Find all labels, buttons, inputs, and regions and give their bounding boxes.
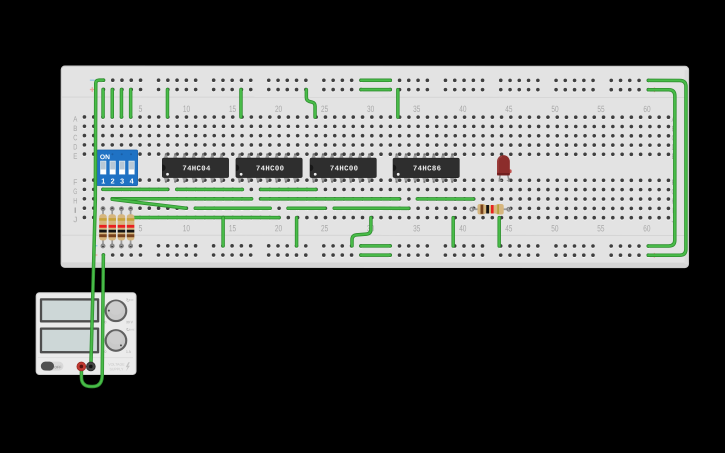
- svg-text:5: 5: [138, 223, 142, 233]
- svg-text:35: 35: [413, 104, 420, 114]
- svg-text:B: B: [73, 124, 77, 133]
- svg-text:50: 50: [551, 104, 558, 114]
- svg-text:74HC00: 74HC00: [330, 165, 358, 173]
- svg-text:1 A: 1 A: [126, 350, 132, 354]
- svg-text:15: 15: [229, 223, 236, 233]
- svg-text:C: C: [73, 133, 77, 142]
- svg-text:SUPPLY: SUPPLY: [109, 367, 124, 371]
- svg-text:50: 50: [551, 223, 558, 233]
- svg-text:0: 0: [105, 350, 107, 354]
- svg-text:25: 25: [321, 104, 328, 114]
- svg-text:60: 60: [643, 223, 650, 233]
- svg-text:30: 30: [367, 104, 374, 114]
- svg-text:4: 4: [130, 176, 134, 185]
- svg-text:30 V: 30 V: [126, 320, 134, 324]
- svg-text:10: 10: [183, 223, 190, 233]
- svg-text:FINE: FINE: [129, 299, 134, 302]
- svg-text:40: 40: [459, 223, 466, 233]
- svg-text:35: 35: [413, 223, 420, 233]
- svg-text:E: E: [73, 152, 77, 161]
- svg-text:55: 55: [597, 223, 604, 233]
- svg-text:45: 45: [505, 223, 512, 233]
- svg-text:H: H: [73, 196, 77, 205]
- svg-text:20: 20: [275, 223, 282, 233]
- svg-text:74HC04: 74HC04: [182, 165, 211, 173]
- svg-text:20: 20: [275, 104, 282, 114]
- svg-text:74HC00: 74HC00: [256, 165, 284, 173]
- svg-text:5: 5: [138, 104, 142, 114]
- svg-text:60: 60: [643, 104, 650, 114]
- svg-text:I: I: [73, 206, 77, 215]
- svg-text:OFF: OFF: [54, 365, 62, 369]
- svg-text:15: 15: [229, 104, 236, 114]
- svg-text:3: 3: [120, 176, 124, 185]
- svg-text:F: F: [73, 178, 77, 187]
- svg-text:ON: ON: [100, 154, 110, 161]
- svg-text:COARSE: COARSE: [129, 328, 135, 331]
- svg-text:25: 25: [321, 223, 328, 233]
- svg-text:40: 40: [459, 104, 466, 114]
- svg-text:10: 10: [183, 104, 190, 114]
- svg-text:D: D: [73, 143, 77, 152]
- svg-text:A: A: [73, 115, 78, 124]
- svg-text:G: G: [73, 187, 77, 196]
- svg-text:0: 0: [105, 320, 107, 324]
- svg-text:45: 45: [505, 104, 512, 114]
- svg-text:VOLTAGE: VOLTAGE: [108, 363, 125, 367]
- svg-text:55: 55: [597, 104, 604, 114]
- svg-text:1: 1: [101, 176, 105, 185]
- svg-text:2: 2: [111, 176, 115, 185]
- svg-text:J: J: [73, 215, 77, 224]
- svg-text:74HC86: 74HC86: [413, 165, 441, 173]
